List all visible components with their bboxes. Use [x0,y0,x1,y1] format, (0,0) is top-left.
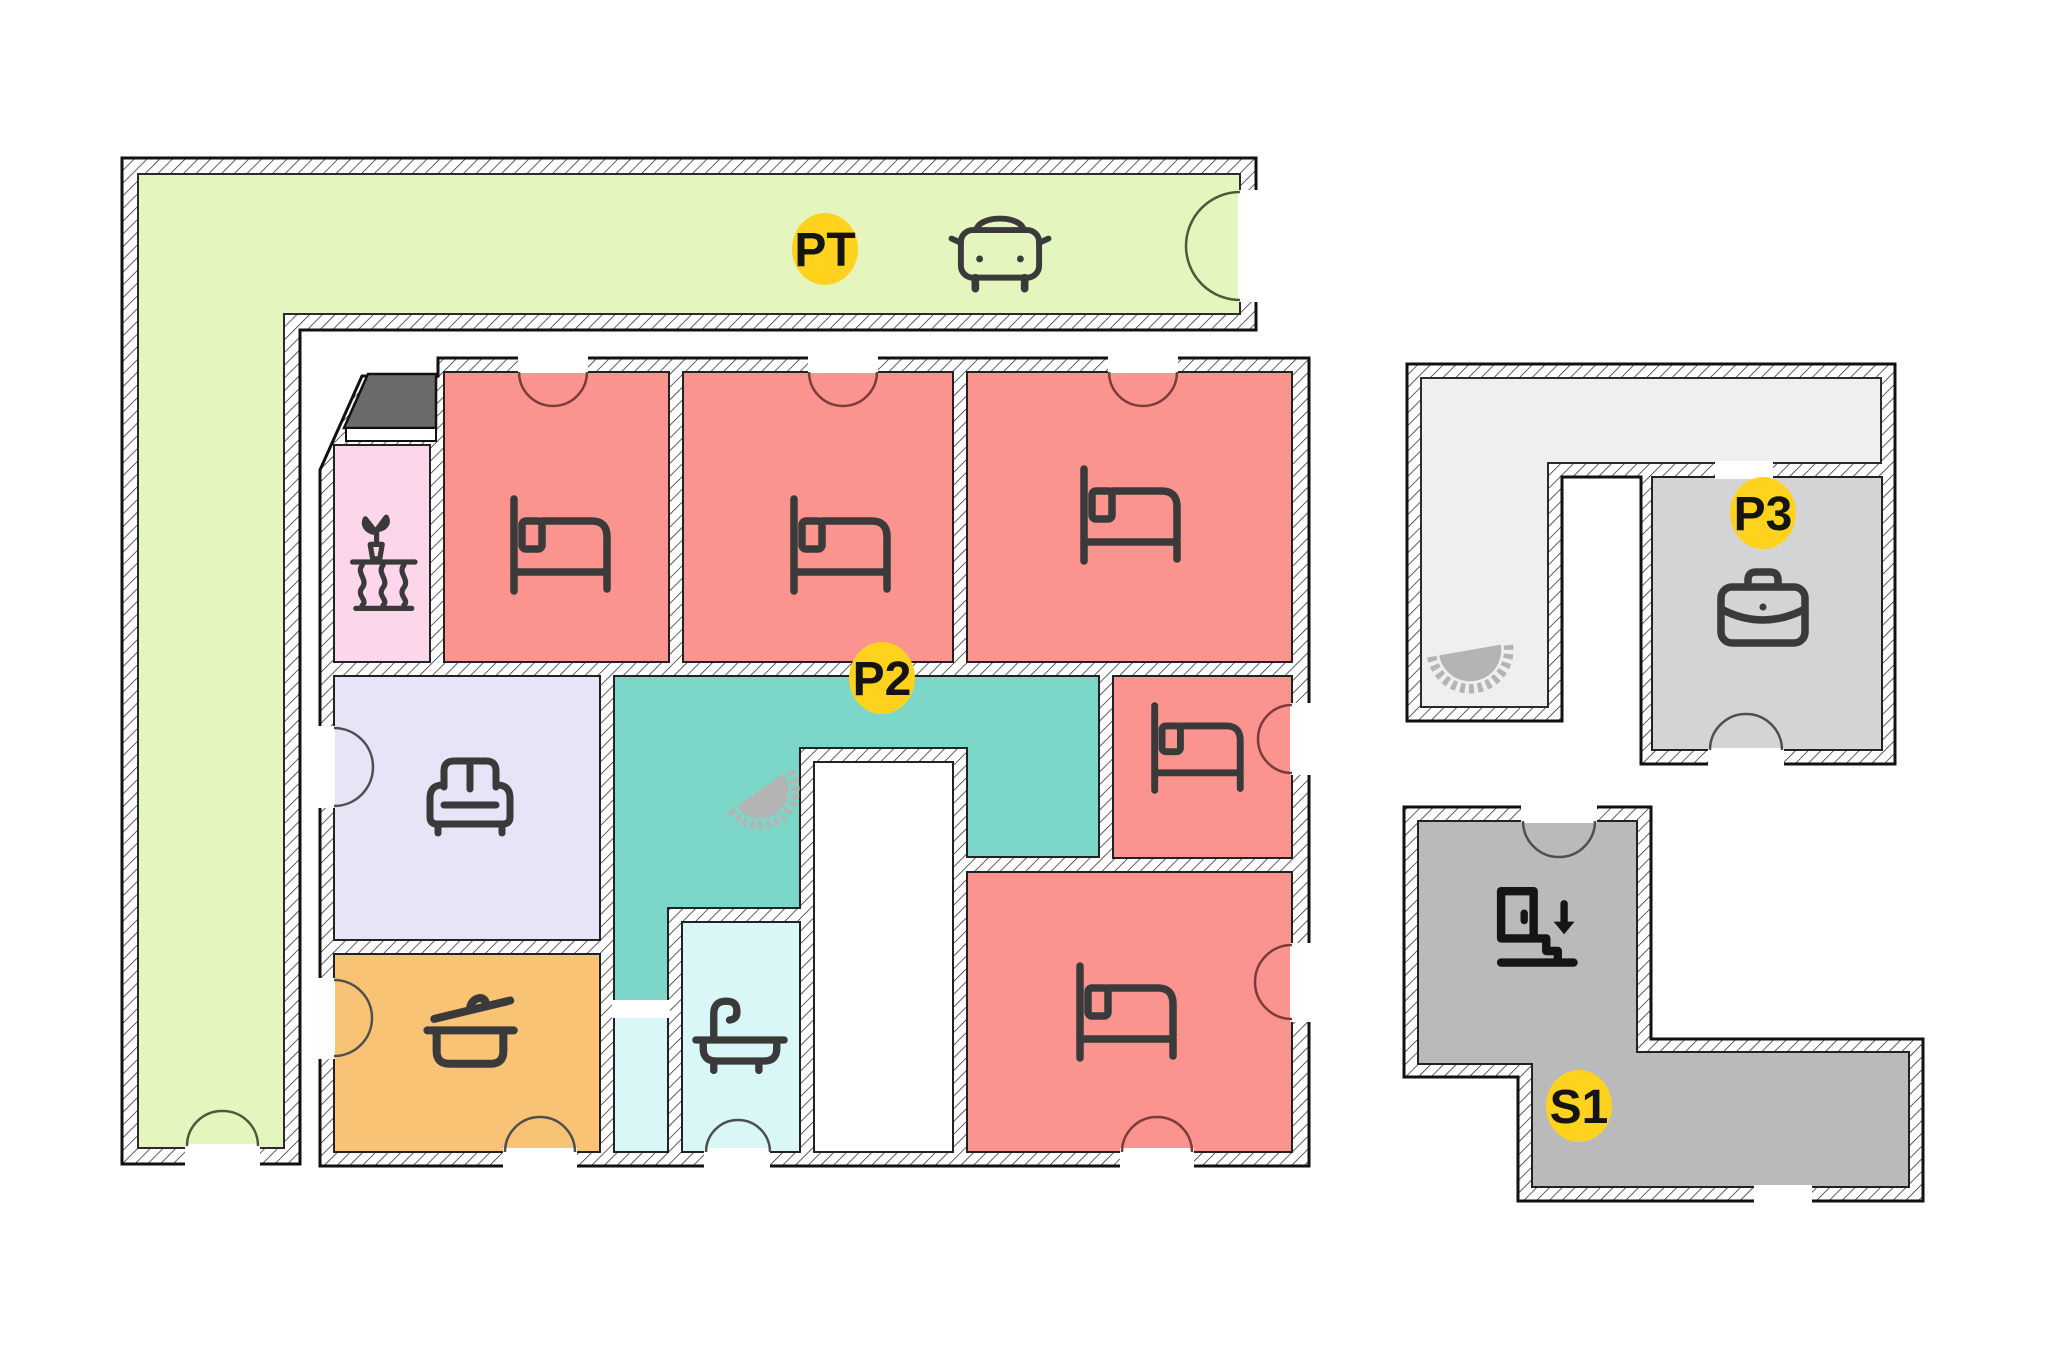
parking-right-door-opening [1238,190,1258,302]
bedroom-2-door-opening [808,356,878,373]
bedroom-5-room [967,872,1292,1152]
stairwell-area [1418,821,1909,1187]
courtyard-cutout [814,762,953,1152]
office-inner-opening [1715,461,1773,479]
stairwell-door-opening [1521,805,1597,823]
badge-office-label: P3 [1734,488,1793,541]
stairwell-building: S1 [1404,805,1923,1203]
badge-parking: PT [792,213,858,285]
apartment-building: P2 [317,356,1311,1168]
bedroom-5-right-door-opening [1290,943,1311,1022]
bedroom-4-room [1113,676,1292,858]
bedroom-1-door-opening [518,356,588,373]
office-door-opening [1708,748,1784,766]
office-building: P3 [1407,364,1895,766]
badge-apartment-label: P2 [853,653,912,706]
stairwell-bottom-wall-gap [1754,1185,1812,1203]
bedroom-2-room [683,372,953,662]
living-door-opening [317,726,335,808]
corridor-threshold-opening [612,1000,670,1018]
bedroom-5-bottom-door-opening [1120,1148,1194,1168]
bathroom-door-opening [704,1148,770,1168]
utility-strip-room [614,1016,668,1152]
balcony-ledge [346,428,436,441]
kitchen-left-door-opening [317,978,335,1059]
badge-parking-label: PT [794,224,855,277]
badge-office: P3 [1730,477,1796,549]
bedroom-3-door-opening [1108,356,1178,373]
bedroom-3-room [967,372,1292,662]
floor-plan-canvas: PT [0,0,2048,1365]
badge-stairwell-label: S1 [1550,1081,1609,1134]
badge-apartment: P2 [849,642,915,714]
kitchen-bottom-door-opening [503,1148,577,1168]
badge-stairwell: S1 [1546,1070,1612,1142]
parking-bottom-door-opening [185,1144,260,1166]
bedroom-1-room [444,372,669,662]
bedroom-4-right-door-opening [1290,703,1311,775]
